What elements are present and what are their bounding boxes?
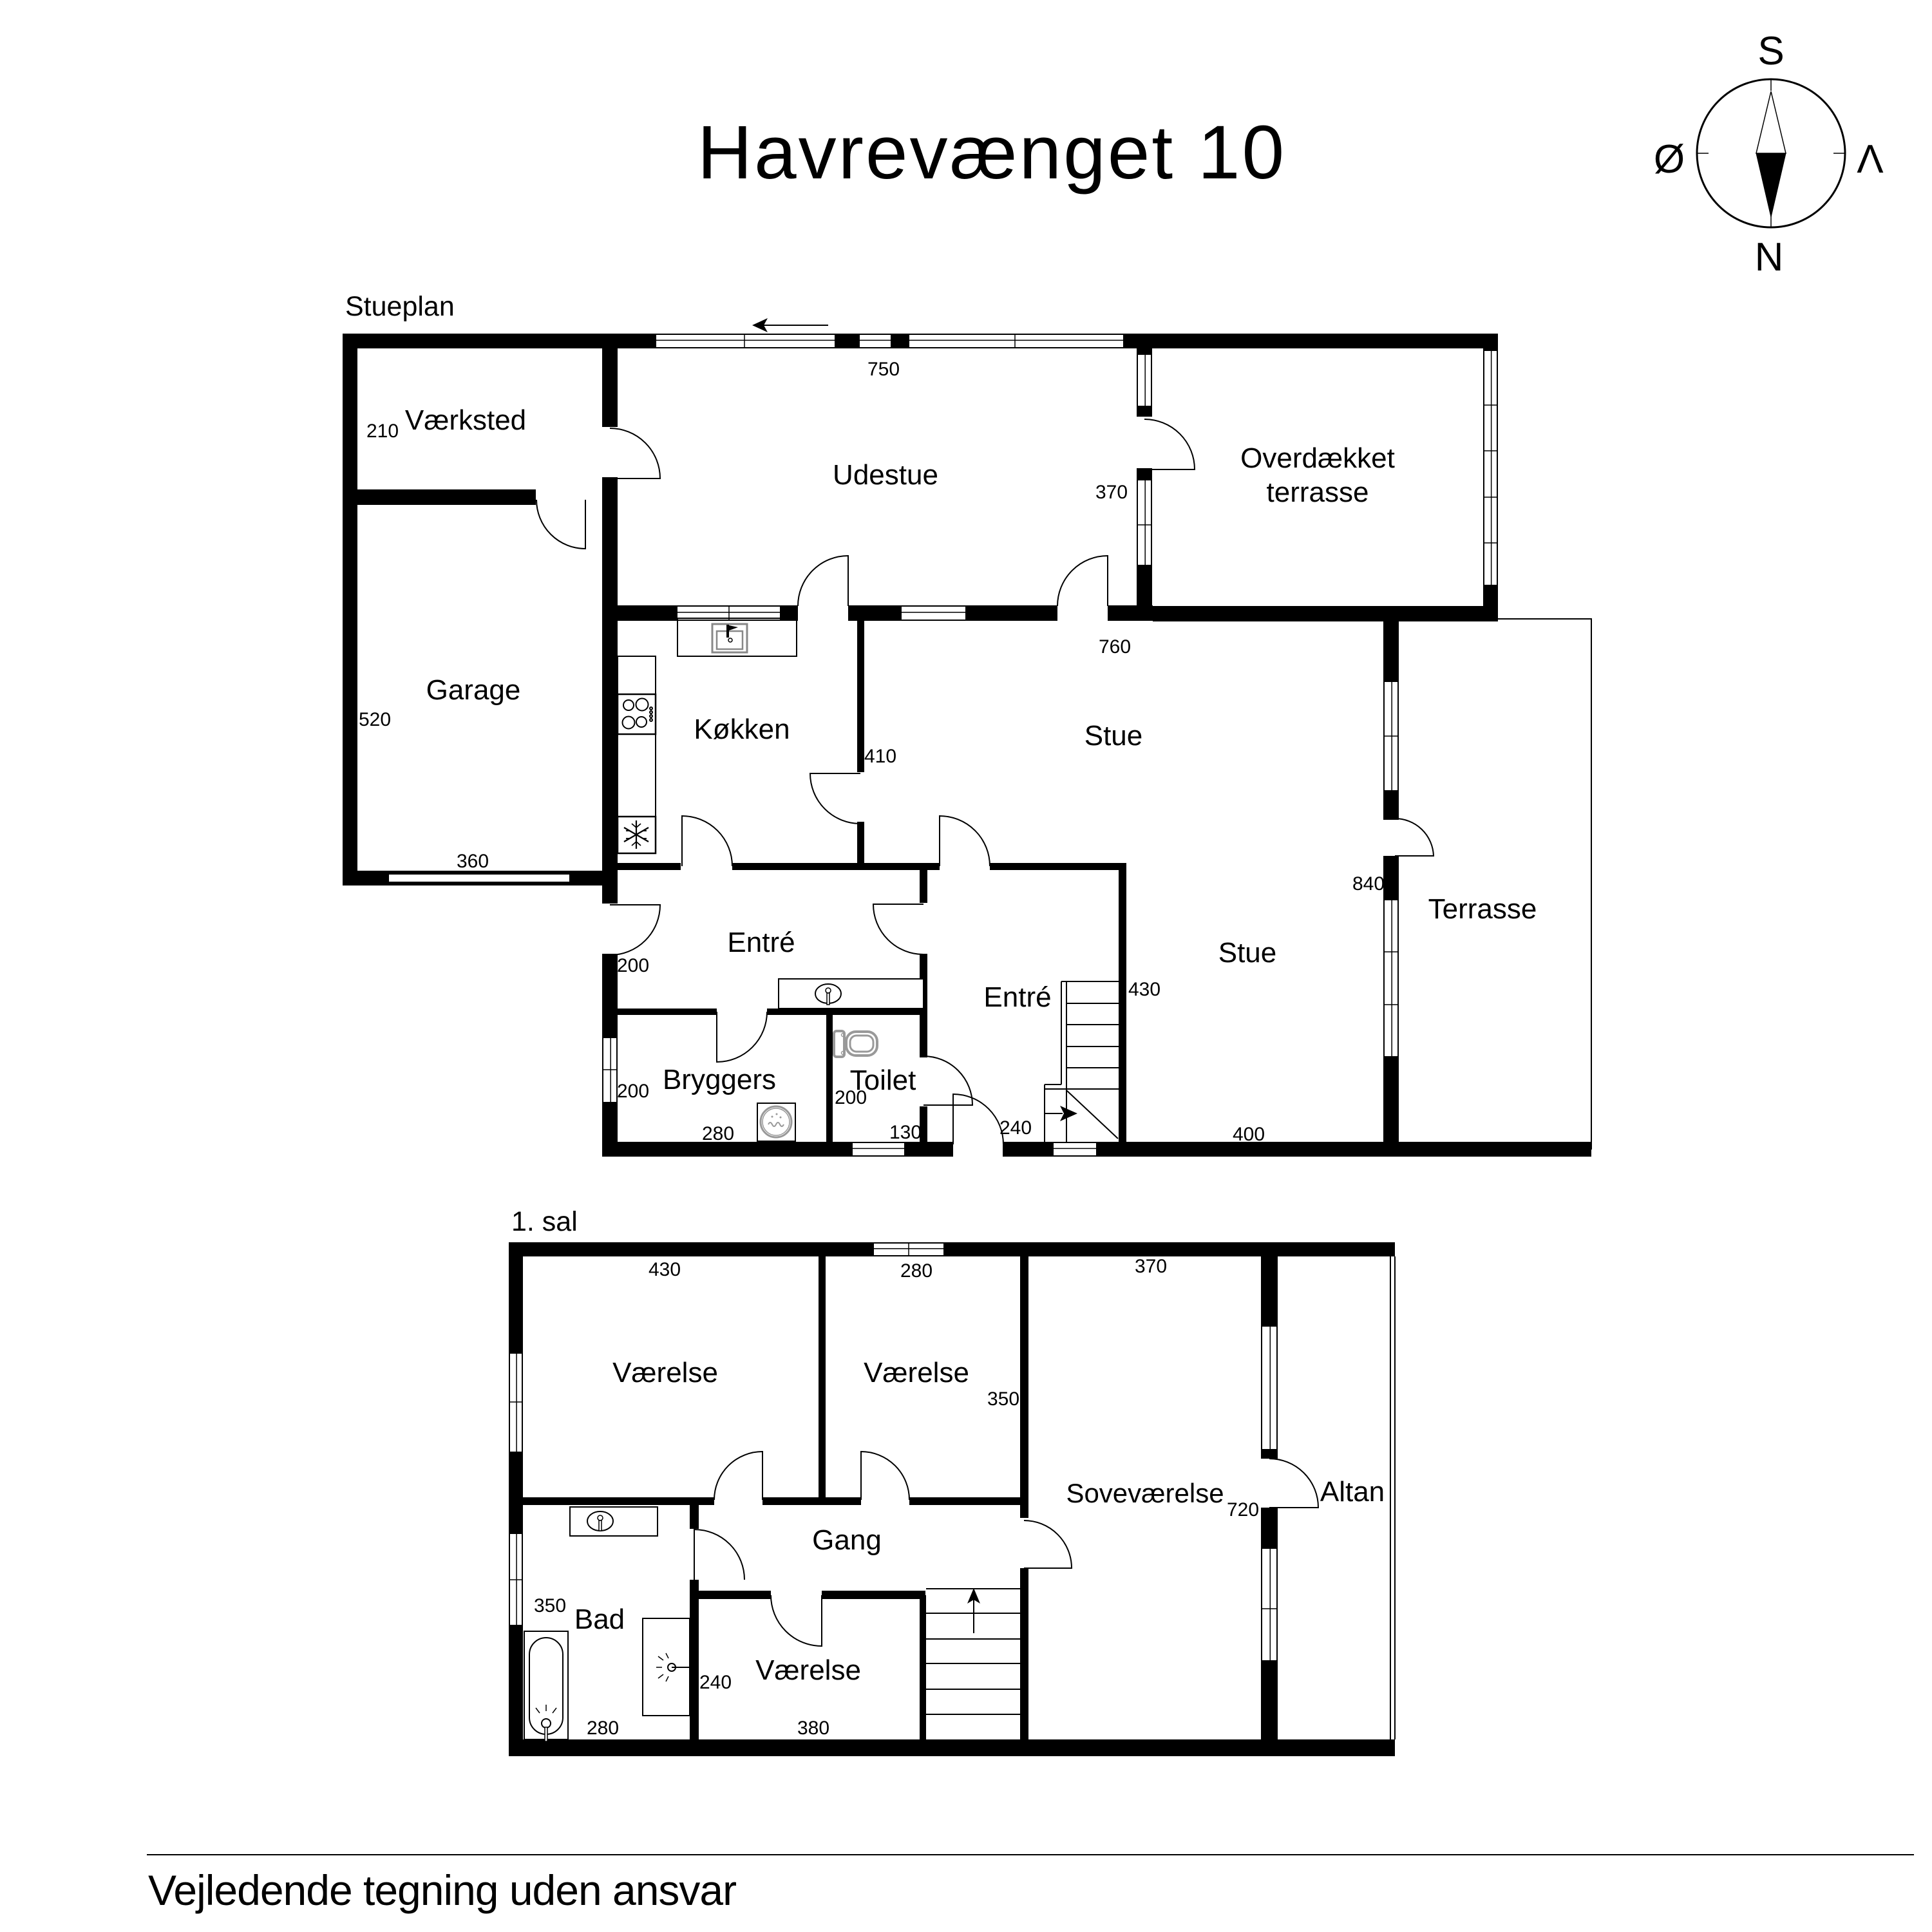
svg-text:430: 430 xyxy=(649,1259,681,1280)
svg-text:Stueplan: Stueplan xyxy=(345,291,455,322)
svg-text:Vejledende tegning uden ansvar: Vejledende tegning uden ansvar xyxy=(148,1866,736,1914)
svg-text:Bryggers: Bryggers xyxy=(663,1064,776,1095)
svg-text:130: 130 xyxy=(889,1122,922,1143)
svg-text:Værelse: Værelse xyxy=(864,1357,969,1388)
svg-text:Overdækket: Overdækket xyxy=(1240,442,1395,474)
svg-text:360: 360 xyxy=(457,851,489,872)
svg-text:280: 280 xyxy=(587,1718,619,1739)
svg-text:720: 720 xyxy=(1227,1499,1259,1520)
svg-text:Terrasse: Terrasse xyxy=(1428,893,1537,925)
svg-text:Soveværelse: Soveværelse xyxy=(1066,1478,1224,1508)
svg-text:N: N xyxy=(1755,235,1784,279)
svg-text:210: 210 xyxy=(366,421,399,442)
svg-text:370: 370 xyxy=(1095,482,1128,503)
svg-text:Garage: Garage xyxy=(426,674,521,706)
svg-text:terrasse: terrasse xyxy=(1267,477,1369,508)
svg-text:Gang: Gang xyxy=(812,1524,882,1556)
svg-text:Stue: Stue xyxy=(1084,720,1143,752)
svg-text:370: 370 xyxy=(1135,1256,1167,1277)
svg-text:Entré: Entré xyxy=(727,927,795,958)
svg-text:380: 380 xyxy=(797,1718,829,1739)
svg-text:Λ: Λ xyxy=(1857,137,1884,182)
svg-text:Entré: Entré xyxy=(983,981,1051,1013)
svg-text:Værelse: Værelse xyxy=(755,1654,861,1686)
svg-text:S: S xyxy=(1757,29,1784,73)
svg-text:520: 520 xyxy=(359,709,391,730)
svg-text:350: 350 xyxy=(534,1595,566,1616)
svg-text:750: 750 xyxy=(867,359,900,380)
svg-text:410: 410 xyxy=(864,746,896,767)
svg-text:280: 280 xyxy=(702,1123,734,1144)
svg-text:350: 350 xyxy=(987,1388,1019,1410)
svg-text:280: 280 xyxy=(900,1260,933,1282)
svg-text:200: 200 xyxy=(835,1087,867,1108)
svg-text:Værksted: Værksted xyxy=(405,404,526,436)
svg-text:840: 840 xyxy=(1352,873,1385,895)
svg-text:760: 760 xyxy=(1099,636,1131,658)
svg-text:240: 240 xyxy=(699,1672,732,1693)
svg-text:200: 200 xyxy=(617,955,649,976)
svg-text:400: 400 xyxy=(1233,1124,1265,1145)
svg-text:Ø: Ø xyxy=(1654,137,1685,182)
svg-text:Bad: Bad xyxy=(574,1604,625,1635)
svg-text:430: 430 xyxy=(1128,979,1160,1000)
svg-text:1. sal: 1. sal xyxy=(511,1206,578,1237)
svg-text:Stue: Stue xyxy=(1218,937,1277,969)
svg-text:Køkken: Køkken xyxy=(694,714,790,745)
svg-text:Værelse: Værelse xyxy=(612,1357,718,1388)
svg-text:240: 240 xyxy=(999,1117,1032,1139)
svg-text:Altan: Altan xyxy=(1320,1476,1385,1508)
svg-text:Havrevænget 10: Havrevænget 10 xyxy=(697,110,1286,195)
svg-text:Udestue: Udestue xyxy=(833,459,938,491)
svg-text:200: 200 xyxy=(617,1081,649,1102)
